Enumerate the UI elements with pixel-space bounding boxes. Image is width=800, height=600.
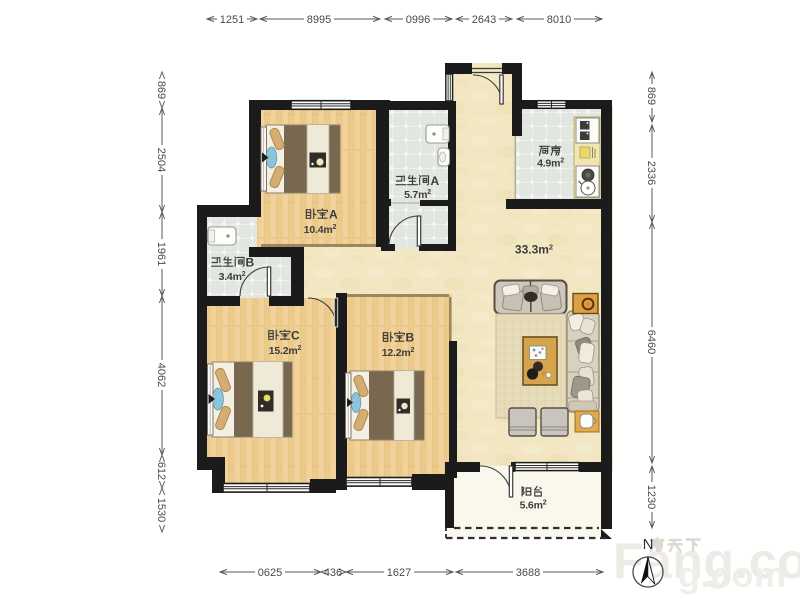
svg-text:0625: 0625 [258,567,282,579]
svg-text:2504: 2504 [155,148,167,172]
svg-text:4062: 4062 [155,363,167,387]
svg-text:5.6m2: 5.6m2 [520,500,547,512]
svg-text:869: 869 [645,87,657,105]
svg-text:3688: 3688 [516,567,540,579]
svg-text:C: C [291,329,300,343]
svg-text:A: A [431,174,440,188]
svg-text:612: 612 [155,462,167,480]
svg-text:1230: 1230 [645,485,657,509]
svg-text:15.2m2: 15.2m2 [269,345,302,357]
svg-text:N: N [643,536,654,553]
svg-text:5.7m2: 5.7m2 [404,189,431,201]
svg-text:869: 869 [155,81,167,99]
svg-text:8995: 8995 [307,14,331,26]
svg-text:1530: 1530 [155,498,167,522]
svg-text:3.4m2: 3.4m2 [219,271,246,283]
svg-text:1961: 1961 [155,242,167,266]
svg-text:1251: 1251 [220,14,244,26]
svg-text:0996: 0996 [406,14,430,26]
svg-text:2643: 2643 [472,14,496,26]
svg-text:12.2m2: 12.2m2 [382,347,415,359]
svg-text:A: A [329,208,338,222]
svg-text:B: B [246,256,255,270]
svg-text:436: 436 [324,567,342,579]
svg-text:B: B [406,331,415,345]
svg-text:10.4m2: 10.4m2 [304,224,337,236]
svg-text:8010: 8010 [547,14,571,26]
svg-text:2336: 2336 [645,161,657,185]
svg-text:33.3m2: 33.3m2 [515,243,553,257]
svg-text:4.9m2: 4.9m2 [537,158,564,170]
svg-text:g.com: g.com [678,554,787,595]
svg-text:6460: 6460 [645,330,657,354]
svg-text:1627: 1627 [387,567,411,579]
